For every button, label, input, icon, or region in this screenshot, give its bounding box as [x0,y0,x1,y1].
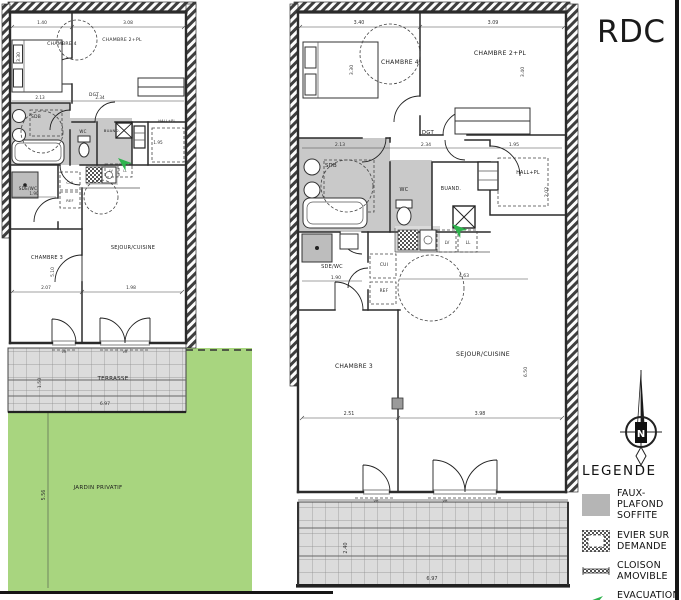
room-label: CHAMBRE 2+PL [102,37,142,43]
room-label: WC [400,187,409,193]
dim-label: 2.40 [343,542,349,553]
dim-label: 2.13 [335,142,345,148]
room-label: SEJOUR/CUISINE [456,351,510,358]
room-label: WC [79,129,86,134]
basin-icon [13,129,26,142]
room-label: CUI [380,262,388,268]
dim-label: LL [466,240,471,245]
room-label: DGT [422,130,435,136]
room-label: CHAMBRE 4 [47,41,77,47]
dim-label: 2.07 [41,285,51,291]
dim-label: 3.09 [488,20,499,26]
legend: LEGENDE FAUX-PLAFOND SOFFITE EVIER SUR D… [582,463,679,600]
room-label: SDE/WC [321,264,343,270]
room-label: SDB [31,114,41,120]
floor-plan-drawing: 5.56 JARDIN PRIVATIF TERRASSE 6.97 1.50 … [0,0,681,600]
dim-label: VR [123,350,128,354]
room-label: BUAND. [104,128,120,133]
kitchen-sink-icon [398,230,418,250]
dim-label: 3.30 [349,65,355,75]
legend-item-label: EVACUATION LL/LV [617,590,680,600]
dim-label: 5.10 [50,267,56,277]
dim-label: 6.97 [426,576,437,582]
dim-label: LV [445,240,450,245]
dim-label: 6.50 [523,367,529,377]
dim-label: 2.34 [95,95,105,100]
room-label: HALL+PL [158,119,175,123]
dim-label: 4.63 [459,273,469,279]
terrace-right: TERRASSE 6.97 2.40 [296,485,570,588]
floor-plan-page: 5.56 JARDIN PRIVATIF TERRASSE 6.97 1.50 … [0,0,681,600]
basin-icon [13,110,26,123]
left-floor-plan: LV LL CHAMBRE 4 CHAMBRE 2+PL DGT SDB WC … [2,2,196,354]
room-label: CHAMBRE 4 [381,59,419,66]
dim-label: 1.90 [331,275,341,281]
dim-label: 2.51 [344,411,355,417]
dim-label: 1.95 [509,142,519,148]
kitchen-sink-icon [86,167,102,183]
evier-swatch-icon [582,530,610,552]
cloison-swatch-icon [582,560,610,582]
duct-box-icon [453,206,475,228]
compass-north-label: N [637,429,645,440]
dim-label: VR [442,498,448,503]
dim-label: 1.90 [29,191,39,196]
basin-icon [304,182,320,198]
legend-label-line: DEMANDE [617,541,667,552]
room-label: SEJOUR/CUISINE [111,245,155,251]
dim-label: 1.50 [37,378,43,388]
dim-label: 3.30 [16,52,22,62]
shower-icon [302,234,332,262]
legend-label-line: EVACUATION [617,590,680,600]
room-label: BUAND. [441,186,461,192]
bathtub-icon [12,140,64,164]
legend-label-line: SOFFITE [617,510,657,521]
legend-label-line: FAUX-PLAFOND [617,488,664,510]
legend-item-label: CLOISON AMOVIBLE [617,560,668,582]
room-label-jardin: JARDIN PRIVATIF [73,485,123,491]
room-label: CHAMBRE 2+PL [474,50,527,57]
room-label: CUI [66,180,73,185]
toilet-icon [78,136,90,157]
dim-label: 3.08 [123,20,133,26]
dim-label: 2.13 [35,95,45,100]
legend-label-line: AMOVIBLE [617,571,668,582]
dim-label: 1.98 [126,285,136,291]
legend-label-line: EVIER SUR [617,530,669,541]
dim-label: 5.56 [41,490,47,501]
legend-item-label: EVIER SUR DEMANDE [617,530,669,552]
basin-icon [304,159,320,175]
room-label: SDB [325,163,337,169]
room-label: HALL+PL [516,170,540,176]
dim-label: 3.40 [520,67,526,77]
legend-item-cloison: CLOISON AMOVIBLE [582,560,679,582]
page-border-right [675,0,679,600]
legend-item-faux-plafond: FAUX-PLAFOND SOFFITE [582,488,679,522]
legend-item-evier: EVIER SUR DEMANDE [582,530,679,552]
room-label: REF [380,288,389,293]
dim-label: 3.98 [475,411,486,417]
terrace-left: TERRASSE 6.97 1.50 [8,348,186,412]
toilet-icon [396,200,412,225]
legend-item-label: FAUX-PLAFOND SOFFITE [617,488,679,522]
room-label: CHAMBRE 3 [335,363,373,370]
north-compass-icon: N [620,370,662,465]
dim-label: 2.02 [544,187,550,197]
room-label: CHAMBRE 3 [31,255,63,261]
dim-label: 6.97 [100,401,110,407]
room-label-terrasse-left: TERRASSE [97,376,129,382]
legend-label-line: CLOISON [617,560,661,571]
dim-label: 2.34 [421,142,431,148]
dim-label: 1.40 [37,20,47,26]
dim-label: VR [62,350,67,354]
bed-icon [12,40,62,92]
right-floor-plan: LV LL CHAMBRE 4 CHAMBRE 2+PL DGT SDB WC … [290,2,578,503]
bathtub-icon [303,198,367,228]
dim-label: VR [373,498,379,503]
dim-label: 3.40 [354,20,365,26]
floor-title: RDC [597,14,677,50]
page-border-bottom [0,591,333,594]
evacuation-arrow-icon [582,591,610,600]
terrace-right-surface [298,502,568,585]
faux-plafond-swatch [582,494,610,516]
room-label: REF [66,199,74,203]
legend-title: LEGENDE [582,463,679,479]
dim-label: 1.95 [153,140,163,145]
bed-icon [303,42,378,98]
legend-item-evacuation: EVACUATION LL/LV [582,590,679,600]
